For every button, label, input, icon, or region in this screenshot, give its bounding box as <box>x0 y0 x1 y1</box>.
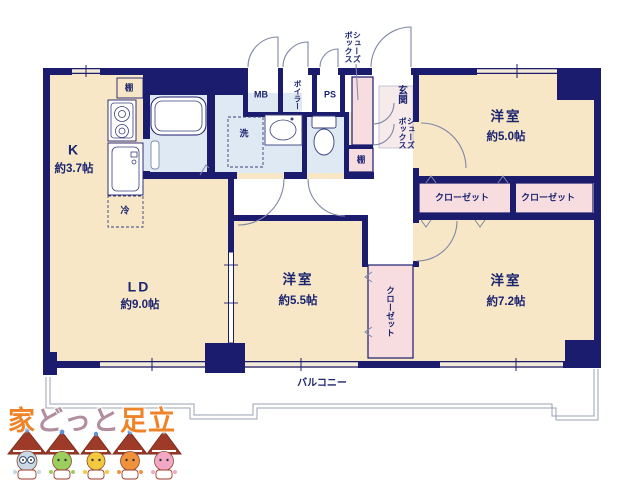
living-label: LD <box>128 280 151 295</box>
hallway-floor <box>234 179 419 221</box>
washer-label: 洗 <box>239 129 248 138</box>
ps-door-arc <box>320 49 338 67</box>
company-logo: 家どっと足立 <box>8 399 176 438</box>
toilet-tank <box>312 116 336 128</box>
pipe-space-label: PS <box>324 90 336 99</box>
wall-bottom-pier <box>205 343 245 373</box>
hallway-column-floor <box>367 221 413 267</box>
kitchen-sink-counter <box>108 143 143 195</box>
wall-left <box>43 68 50 375</box>
mb-door-arc <box>248 37 278 67</box>
bedroom-se-size: 約7.2帖 <box>487 296 526 308</box>
entrance-label: 玄関 <box>396 81 406 107</box>
bedroom-ne-size: 約5.0帖 <box>487 131 526 143</box>
closet-label-2: クローゼット <box>521 193 575 202</box>
wall-right <box>594 68 601 368</box>
logo-part-dot: どっと <box>36 406 120 436</box>
boiler-door-arc <box>283 42 308 67</box>
floorplan-page: K 約3.7帖 LD 約9.0帖 洋室 約5.5帖 洋室 約5.0帖 洋室 約7… <box>0 0 640 480</box>
bath-door <box>141 139 159 171</box>
bedroom-center-size: 約5.5帖 <box>279 295 318 307</box>
meter-box-label: MB <box>254 90 268 99</box>
kitchen-size: 約3.7帖 <box>55 163 94 175</box>
bedroom-se-label: 洋室 <box>491 274 522 288</box>
kitchen-label: K <box>68 143 80 158</box>
shoes-box-label-top: シューズボックス <box>344 28 361 66</box>
logo-part-house: 家 <box>8 406 36 436</box>
boiler-label: ボイラー <box>293 76 301 114</box>
bedroom-center-label: 洋室 <box>283 273 314 287</box>
shelf-label-kitchen: 棚 <box>125 84 134 93</box>
vanity <box>265 115 302 145</box>
closet-label-vertical: クローゼット <box>386 280 395 342</box>
logo-part-adachi: 足立 <box>120 406 176 436</box>
shoes-box-cabinet <box>352 77 373 145</box>
bedroom-ne-label: 洋室 <box>491 110 522 124</box>
wall-top-band <box>143 68 248 95</box>
living-size: 約9.0帖 <box>121 299 160 311</box>
fridge-label: 冷 <box>120 206 129 215</box>
balcony-label: バルコニー <box>297 379 347 390</box>
closet-label-1: クローゼット <box>435 193 489 202</box>
entrance-door-arc <box>371 27 411 67</box>
shelf-label-entrance: 棚 <box>357 156 366 165</box>
toilet-bowl <box>314 129 334 155</box>
shoes-box-label-inner: シューズボックス <box>398 114 415 152</box>
bathtub <box>151 97 206 135</box>
mascot-house-3 <box>81 432 111 479</box>
